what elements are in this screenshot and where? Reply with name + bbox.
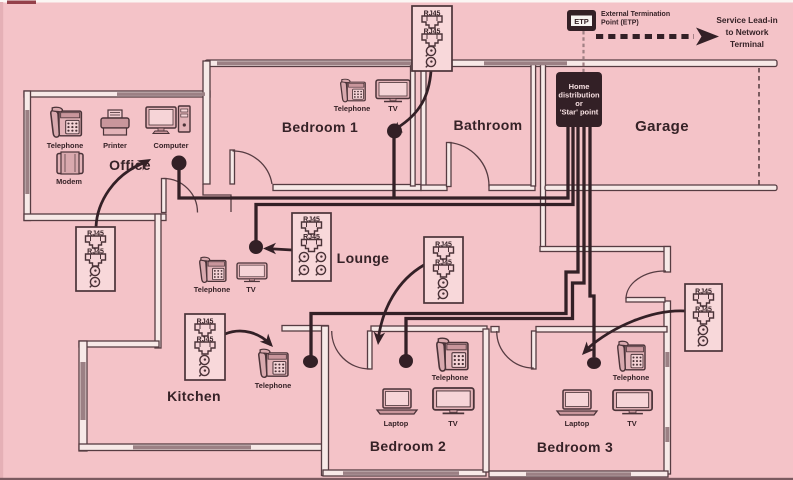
svg-text:Printer: Printer bbox=[103, 141, 127, 150]
svg-text:Kitchen: Kitchen bbox=[167, 388, 221, 404]
svg-text:Office: Office bbox=[109, 157, 151, 173]
svg-text:Telephone: Telephone bbox=[47, 141, 83, 150]
svg-text:Telephone: Telephone bbox=[194, 285, 230, 294]
svg-text:'Star' point: 'Star' point bbox=[560, 108, 599, 117]
svg-text:ETP: ETP bbox=[574, 17, 589, 26]
svg-text:Garage: Garage bbox=[635, 118, 689, 135]
svg-text:to Network: to Network bbox=[726, 27, 769, 37]
svg-text:Computer: Computer bbox=[154, 141, 189, 150]
svg-text:TV: TV bbox=[388, 104, 398, 113]
svg-text:Bedroom 3: Bedroom 3 bbox=[537, 439, 613, 455]
svg-text:Telephone: Telephone bbox=[255, 381, 291, 390]
svg-text:Telephone: Telephone bbox=[334, 104, 370, 113]
svg-text:Telephone: Telephone bbox=[432, 373, 468, 382]
svg-text:Service Lead-in: Service Lead-in bbox=[716, 15, 777, 25]
svg-text:Bedroom 1: Bedroom 1 bbox=[282, 119, 358, 135]
svg-text:TV: TV bbox=[246, 285, 256, 294]
svg-text:External Termination: External Termination bbox=[601, 11, 670, 18]
svg-text:Telephone: Telephone bbox=[613, 373, 649, 382]
svg-text:Laptop: Laptop bbox=[384, 419, 409, 428]
svg-text:Point (ETP): Point (ETP) bbox=[601, 20, 639, 27]
svg-text:TV: TV bbox=[627, 419, 637, 428]
svg-text:Lounge: Lounge bbox=[337, 250, 390, 266]
svg-text:Terminal: Terminal bbox=[730, 39, 764, 49]
svg-text:Bathroom: Bathroom bbox=[454, 117, 523, 133]
svg-text:Bedroom 2: Bedroom 2 bbox=[370, 438, 446, 454]
svg-text:Modem: Modem bbox=[56, 177, 82, 186]
svg-text:TV: TV bbox=[448, 419, 458, 428]
svg-text:Laptop: Laptop bbox=[565, 419, 590, 428]
